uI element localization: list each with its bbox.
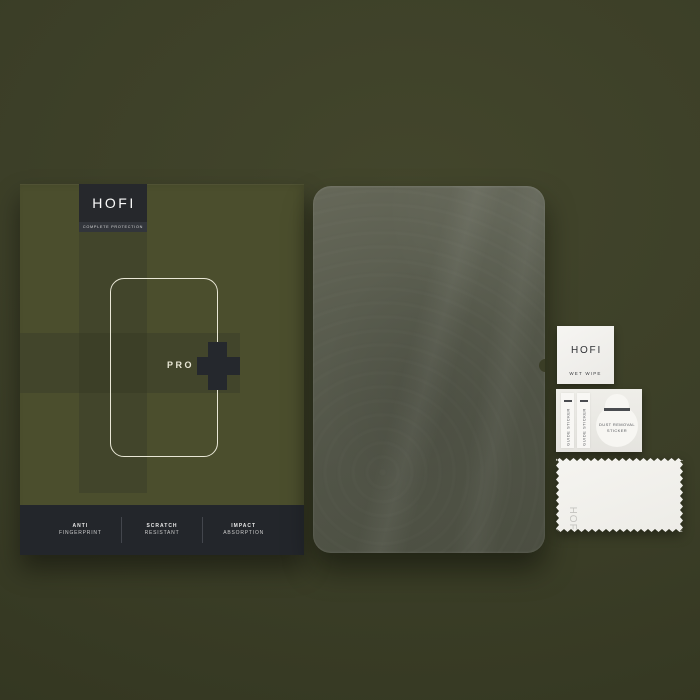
model-label: PRO <box>160 360 194 370</box>
feature-anti-fingerprint: ANTI FINGERPRINT <box>40 523 121 537</box>
tempered-glass <box>313 186 545 553</box>
plus-icon <box>197 342 240 390</box>
guide-sticker-label: GUIDE STICKER <box>581 408 586 446</box>
wet-wipe-label: WET WIPE <box>557 371 614 376</box>
sticker-tab <box>604 408 630 411</box>
feature-line1: SCRATCH <box>122 523 203 530</box>
brand-badge: HOFI COMPLETE PROTECTION <box>79 184 147 232</box>
brand-logo: HOFI <box>79 184 147 222</box>
feature-line2: RESISTANT <box>122 530 203 537</box>
sticker-tab <box>564 400 572 402</box>
feature-line1: ANTI <box>40 523 121 530</box>
camera-notch <box>539 359 545 372</box>
product-box: HOFI COMPLETE PROTECTION PRO ANTI FINGER… <box>20 184 304 555</box>
brand-tagline: COMPLETE PROTECTION <box>79 222 147 232</box>
dust-removal-label: DUST REMOVAL STICKER <box>592 422 642 433</box>
sticker-card: GUIDE STICKER GUIDE STICKER DUST REMOVAL… <box>556 389 642 452</box>
feature-scratch-resistant: SCRATCH RESISTANT <box>122 523 203 537</box>
dust-removal-sticker: DUST REMOVAL STICKER <box>596 394 638 447</box>
cloth-body: HOFI <box>556 458 683 532</box>
dust-removal-label-line1: DUST REMOVAL <box>592 422 642 428</box>
wet-wipe-packet: HOFI WET WIPE <box>557 326 614 384</box>
guide-sticker: GUIDE STICKER <box>561 393 574 448</box>
guide-sticker: GUIDE STICKER <box>577 393 590 448</box>
feature-line2: ABSORPTION <box>203 530 284 537</box>
feature-impact-absorption: IMPACT ABSORPTION <box>203 523 284 537</box>
product-photo: HOFI COMPLETE PROTECTION PRO ANTI FINGER… <box>0 0 700 700</box>
feature-line1: IMPACT <box>203 523 284 530</box>
sticker-tab <box>580 400 588 402</box>
dust-removal-label-line2: STICKER <box>592 428 642 434</box>
microfiber-cloth: HOFI <box>556 458 683 532</box>
guide-sticker-label: GUIDE STICKER <box>565 408 570 446</box>
wet-wipe-brand: HOFI <box>557 345 614 356</box>
feature-line2: FINGERPRINT <box>40 530 121 537</box>
glass-polish-swirl <box>313 186 545 553</box>
features-bar: ANTI FINGERPRINT SCRATCH RESISTANT IMPAC… <box>20 505 304 555</box>
plus-icon-horizontal-bar <box>197 357 240 375</box>
cloth-brand-label: HOFI <box>560 508 585 533</box>
